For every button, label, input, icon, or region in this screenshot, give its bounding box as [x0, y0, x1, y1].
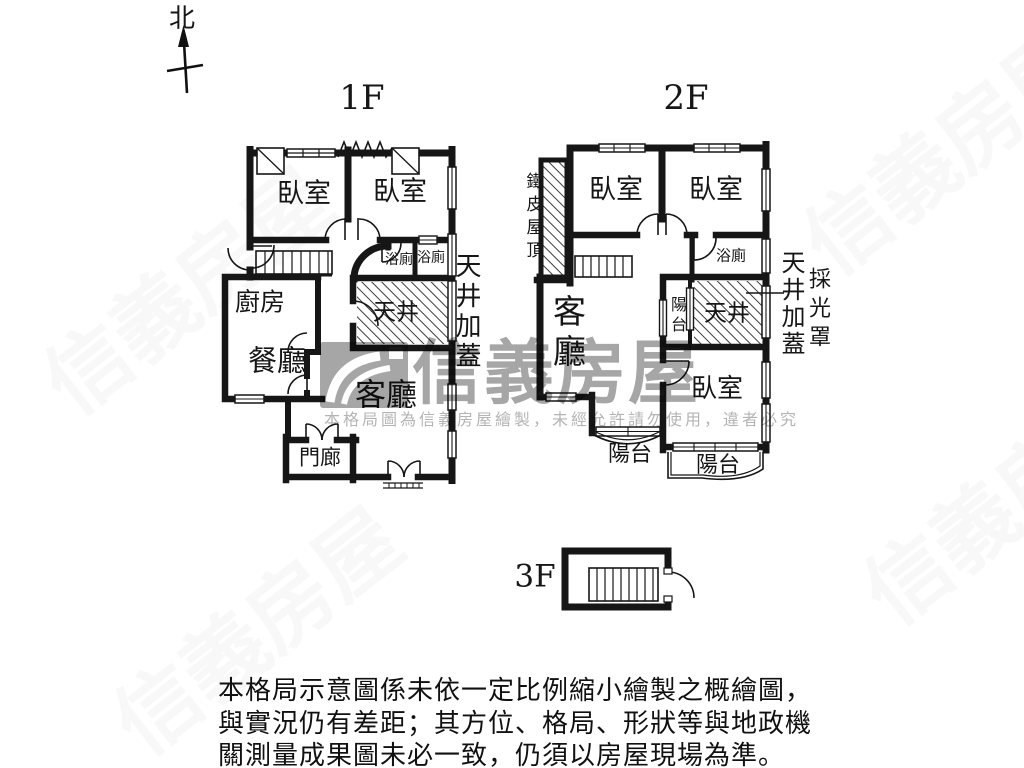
- disclaimer-line2: 與實況仍有差距；其方位、格局、形狀等與地政機: [218, 711, 812, 737]
- north-label: 北: [169, 6, 195, 32]
- f2-balcony-mid-label: 陽台: [669, 296, 685, 336]
- f2-stairs: [575, 256, 632, 277]
- disclaimer-line3: 關測量成果圖未必一致，仍須以房屋現場為準。: [218, 743, 785, 768]
- f2-iron-roof-hatch: [541, 160, 567, 277]
- disclaimer-line1: 本格局示意圖係未依一定比例縮小繪製之概繪圖，: [218, 678, 812, 704]
- floor3-plan: [565, 551, 694, 607]
- floor-plan-canvas: [0, 0, 1024, 768]
- f1-porch-label: 門廊: [299, 448, 341, 469]
- floorplan-page: 北 1F 臥室 臥室 浴廁 浴廁 廚房 餐廳 天井 客廳 門廊 天井加蓋 2F …: [0, 0, 1024, 768]
- f2-bedroom1-label: 臥室: [589, 177, 643, 204]
- f3-stairs: [589, 568, 658, 601]
- f2-lightwell-label: 天井: [704, 303, 750, 326]
- floor1-title: 1F: [339, 81, 384, 115]
- f1-dining-label: 餐廳: [248, 347, 306, 376]
- f1-bath2-label: 浴廁: [417, 251, 445, 265]
- floor2-title: 2F: [663, 81, 708, 115]
- f1-kitchen-label: 廚房: [235, 290, 285, 315]
- f2-balcony-left-label: 陽台: [608, 444, 652, 466]
- f1-lightwell-label: 天井: [373, 302, 419, 325]
- f1-bedroom2-label: 臥室: [373, 179, 427, 206]
- f2-bedroom2-label: 臥室: [689, 177, 743, 204]
- f2-bath-label: 浴廁: [716, 249, 746, 264]
- f1-lightwell-cover-label: 天井加蓋: [453, 252, 479, 372]
- f2-balcony-right-label: 陽台: [696, 455, 740, 477]
- f2-light-cover-label: 採光罩: [806, 267, 828, 354]
- floor3-title: 3F: [514, 562, 555, 593]
- f2-lightwell-cover-label: 天井加蓋: [779, 250, 803, 358]
- f1-living-label: 客廳: [355, 381, 417, 412]
- f1-bedroom1-label: 臥室: [277, 181, 331, 208]
- f2-living-label: 客廳: [551, 294, 584, 374]
- north-arrow: [167, 25, 203, 93]
- f2-iron-roof-label: 鐵皮屋頂: [524, 172, 541, 264]
- f1-bath1-label: 浴廁: [385, 253, 413, 267]
- f2-bedroom3-label: 臥室: [691, 376, 743, 402]
